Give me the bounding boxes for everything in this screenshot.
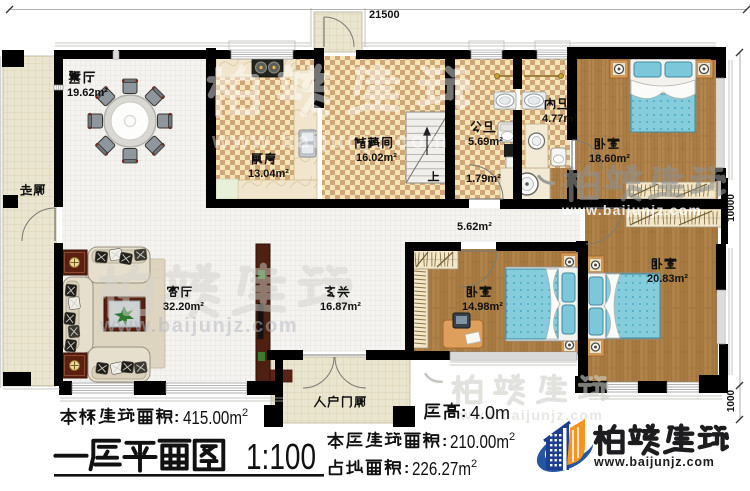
- svg-text:1:100: 1:100: [246, 436, 316, 477]
- svg-text:20.83m²: 20.83m²: [647, 273, 688, 285]
- svg-text:32.20m²: 32.20m²: [163, 301, 204, 313]
- svg-text:1000: 1000: [726, 389, 737, 412]
- svg-text:226.27m2: 226.27m2: [412, 458, 477, 479]
- svg-text:415.00m2: 415.00m2: [183, 407, 248, 428]
- svg-text:4.0m: 4.0m: [470, 403, 510, 423]
- svg-text:5.62m²: 5.62m²: [457, 221, 492, 233]
- svg-text::: :: [404, 460, 409, 477]
- svg-text:10000: 10000: [726, 194, 737, 222]
- svg-text:210.00m2: 210.00m2: [450, 431, 515, 452]
- svg-text:www.baijunjz.com: www.baijunjz.com: [561, 202, 702, 218]
- svg-text::: :: [174, 409, 179, 426]
- svg-text:18.60m²: 18.60m²: [589, 153, 630, 165]
- svg-text:www.baijunjz.com: www.baijunjz.com: [593, 455, 715, 469]
- svg-text::: :: [442, 433, 447, 450]
- svg-text:4.77m²: 4.77m²: [542, 113, 577, 125]
- svg-text:www.baijunjz.com: www.baijunjz.com: [99, 315, 298, 337]
- svg-text:16.02m²: 16.02m²: [356, 152, 397, 164]
- svg-text::: :: [461, 404, 466, 421]
- svg-text:21500: 21500: [369, 9, 400, 21]
- svg-text:5.69m²: 5.69m²: [468, 136, 503, 148]
- svg-text:13.04m²: 13.04m²: [248, 168, 289, 180]
- svg-text:www.baijunjz.com: www.baijunjz.com: [211, 128, 450, 153]
- svg-text:19.62m²: 19.62m²: [67, 87, 108, 99]
- svg-text:16.87m²: 16.87m²: [320, 301, 361, 313]
- svg-text:1.79m²: 1.79m²: [466, 173, 501, 185]
- svg-text:14.98m²: 14.98m²: [462, 301, 503, 313]
